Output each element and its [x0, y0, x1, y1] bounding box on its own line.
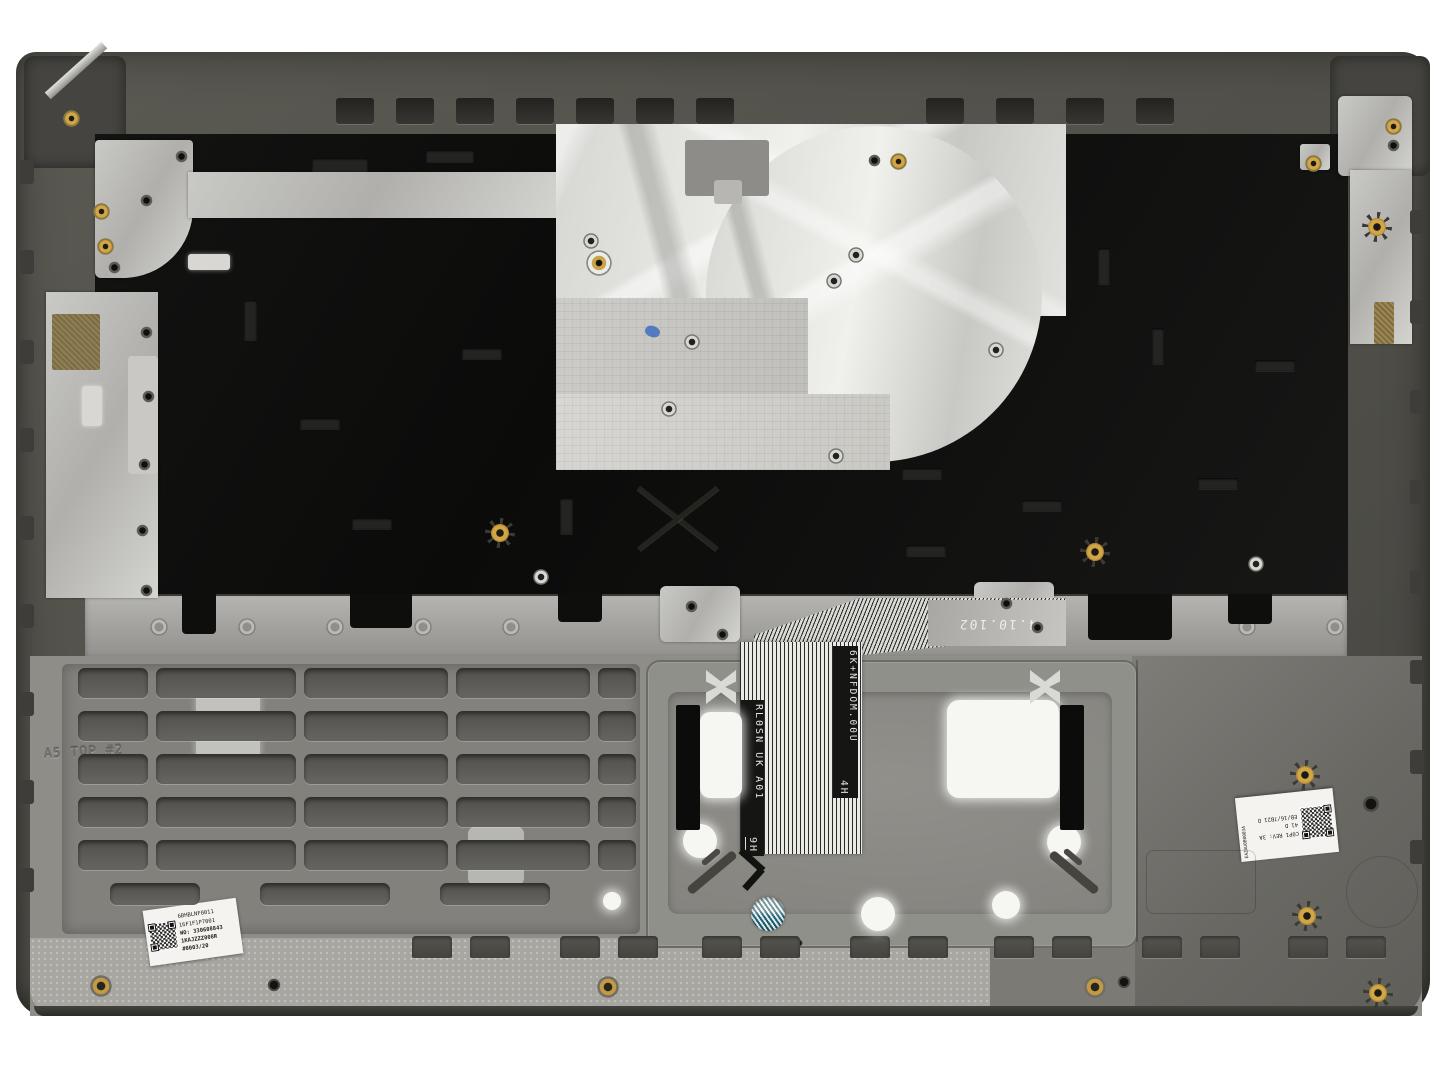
- vent-slat: [598, 711, 636, 741]
- vent-slat: [598, 668, 636, 698]
- qr-finder: [1323, 804, 1332, 813]
- edge-clip: [470, 936, 510, 958]
- ribbon-marking-right: 6K+NFDOM.00U 4H: [833, 646, 858, 798]
- qr-finder: [1326, 828, 1335, 837]
- gold-screw: [97, 238, 114, 255]
- edge-tab: [696, 98, 734, 124]
- panel-outline: [1146, 850, 1256, 914]
- cutout-slot: [462, 348, 502, 359]
- hinge-bracket-right: [1338, 96, 1412, 176]
- rim-nub: [1410, 390, 1424, 414]
- rivet-dent: [150, 618, 168, 636]
- screw-boss-star: [1360, 210, 1394, 244]
- rim-nub: [1410, 840, 1424, 864]
- rim-nub: [1410, 750, 1424, 774]
- vent-slat: [598, 754, 636, 784]
- edge-tab: [576, 98, 614, 124]
- copper-tape-right: [1374, 302, 1394, 344]
- rim-nub: [20, 250, 34, 274]
- screw-boss-star: [483, 516, 517, 550]
- qr-finder: [1302, 831, 1311, 840]
- screw-hole: [716, 628, 729, 641]
- cutout-slot: [1098, 248, 1110, 284]
- vent-slat: [456, 840, 590, 870]
- rivet-dent: [502, 618, 520, 636]
- screw-hole: [1000, 597, 1013, 610]
- vent-slat: [156, 797, 296, 827]
- rivet-dent: [238, 618, 256, 636]
- round-cutout: [603, 892, 621, 910]
- screw-hole: [140, 194, 153, 207]
- edge-clip: [1142, 936, 1182, 958]
- qr-finder: [150, 943, 159, 952]
- screw: [848, 247, 864, 263]
- edge-tab: [336, 98, 374, 124]
- ribbon-part-text: RL0SN UK A01: [753, 704, 764, 800]
- cutout-slot: [312, 158, 368, 171]
- round-hole: [1362, 795, 1380, 813]
- cutout-slot: [1022, 500, 1062, 511]
- rim-nub: [1410, 660, 1424, 684]
- edge-clip: [412, 936, 452, 958]
- adhesive-cutout: [947, 700, 1059, 798]
- backplate-tab: [1088, 594, 1172, 640]
- vent-slat: [78, 754, 148, 784]
- screw: [1248, 556, 1264, 572]
- rim-nub: [20, 428, 34, 452]
- ribbon-code: 4H: [838, 780, 849, 795]
- vent-slat: [78, 711, 148, 741]
- screw: [826, 273, 842, 289]
- screw-hole: [175, 150, 188, 163]
- cutout-slot: [1255, 360, 1295, 371]
- cutout-slot: [426, 150, 474, 162]
- rim-nub: [20, 780, 34, 804]
- copper-pad-left: [52, 314, 100, 370]
- qr-finder: [147, 923, 156, 932]
- screw-hole: [108, 261, 121, 274]
- rim-nub: [1410, 300, 1424, 324]
- edge-clip: [560, 936, 600, 958]
- qr-finder: [167, 920, 176, 929]
- round-cutout: [861, 897, 895, 931]
- rivet-dent: [326, 618, 344, 636]
- screw-hole: [142, 390, 155, 403]
- rim-nub: [20, 868, 34, 892]
- vent-slat: [304, 797, 448, 827]
- round-cutout: [992, 891, 1020, 919]
- screw-hole: [140, 326, 153, 339]
- rivet-dent: [1326, 618, 1344, 636]
- edge-clip: [1288, 936, 1328, 958]
- vent-slat: [456, 711, 590, 741]
- edge-tab: [926, 98, 964, 124]
- panel-groove: [1136, 660, 1138, 942]
- service-label-text: 6BHBLNF0011 16F1F1P7001 WO: 330608843 1K…: [177, 903, 227, 959]
- screw-insert-brass: [90, 975, 112, 997]
- screw: [533, 569, 549, 585]
- cutout-slot: [560, 498, 573, 534]
- screw-boss-star: [1288, 758, 1322, 792]
- screw-hole: [138, 458, 151, 471]
- gold-screw: [93, 203, 110, 220]
- date-stamp: 4.10.102: [957, 616, 1037, 631]
- light-slot: [188, 254, 230, 270]
- screw: [828, 448, 844, 464]
- edge-clip: [1200, 936, 1240, 958]
- edge-tab: [1066, 98, 1104, 124]
- date-stamp-area: 4.10.102: [928, 600, 1066, 646]
- backplate-tab: [1228, 594, 1272, 624]
- vent-slat: [598, 797, 636, 827]
- screw-boss-star: [1290, 899, 1324, 933]
- edge-clip: [618, 936, 658, 958]
- screw: [988, 342, 1004, 358]
- edge-clip: [850, 936, 890, 958]
- cutout-slot: [1198, 478, 1238, 489]
- foil-patch-tab: [714, 180, 742, 204]
- edge-tab: [1136, 98, 1174, 124]
- backplate-tab: [350, 594, 412, 628]
- edge-tab: [636, 98, 674, 124]
- vent-slat: [156, 668, 296, 698]
- screw: [583, 233, 599, 249]
- left-rail-extension: [128, 356, 158, 474]
- front-edge: [34, 1006, 1418, 1016]
- cutout-slot: [352, 518, 392, 529]
- faint-circle: [1346, 856, 1418, 928]
- backplate-tab: [182, 594, 216, 634]
- vent-slat: [304, 754, 448, 784]
- vent-slat: [598, 840, 636, 870]
- vent-slat: [78, 668, 148, 698]
- screw-hole: [1387, 139, 1400, 152]
- cutout-slot: [902, 468, 942, 479]
- backplate-tab: [558, 594, 602, 622]
- vent-slat: [304, 711, 448, 741]
- screw-hole: [136, 524, 149, 537]
- vent-slat: [456, 754, 590, 784]
- edge-clip: [760, 936, 800, 958]
- screw-hole: [685, 600, 698, 613]
- screw-hole: [140, 584, 153, 597]
- product-photo-laptop-palmrest: A5 TOP #2 4.10.102 RL0SN UK A01 9H 6K+NF…: [0, 0, 1445, 1084]
- gold-screw: [63, 110, 80, 127]
- screw-hole: [868, 154, 881, 167]
- rim-nub: [1410, 480, 1424, 504]
- qr-code: [1299, 804, 1334, 839]
- screw-insert-brass: [1084, 976, 1106, 998]
- gold-screw: [1305, 155, 1322, 172]
- edge-tab: [456, 98, 494, 124]
- edge-tab: [396, 98, 434, 124]
- adhesive-cutout: [700, 712, 742, 798]
- edge-clip: [702, 936, 742, 958]
- gold-screw: [890, 153, 907, 170]
- rivet-dent: [414, 618, 432, 636]
- vent-slat: [110, 883, 200, 905]
- vent-slat: [456, 797, 590, 827]
- rim-nub: [20, 692, 34, 716]
- vent-slat: [456, 668, 590, 698]
- edge-clip: [908, 936, 948, 958]
- round-hole: [267, 978, 281, 992]
- rim-nub: [1410, 570, 1424, 594]
- cutout-slot: [300, 418, 340, 429]
- adhesive-strip: [676, 705, 700, 830]
- edge-clip: [1346, 936, 1386, 958]
- rim-nub: [20, 340, 34, 364]
- cutout-slot: [244, 300, 257, 340]
- cutout-slot: [1152, 328, 1164, 364]
- vent-slat: [156, 754, 296, 784]
- hologram-sticker: [751, 897, 785, 931]
- screw: [684, 334, 700, 350]
- rim-nub: [20, 516, 34, 540]
- vent-slat: [156, 840, 296, 870]
- top-rail: [188, 172, 560, 218]
- rim-nub: [1410, 210, 1424, 234]
- screw-boss-star: [1361, 976, 1395, 1010]
- screw-insert-brass: [597, 976, 619, 998]
- cutout-slot: [906, 545, 946, 556]
- service-label-text: C0P1 REV: 3A 41 D EB/16/7B21 D: [1255, 795, 1301, 857]
- vent-slat: [304, 840, 448, 870]
- adhesive-strip: [1060, 705, 1084, 830]
- edge-clip: [1052, 936, 1092, 958]
- edge-tab: [996, 98, 1034, 124]
- light-slot: [82, 386, 102, 426]
- ribbon-part-text: 6K+NFDOM.00U: [847, 650, 858, 743]
- vent-slat: [156, 711, 296, 741]
- vent-slat: [260, 883, 390, 905]
- edge-tab: [516, 98, 554, 124]
- vent-slat: [78, 797, 148, 827]
- vent-slat: [440, 883, 550, 905]
- screw: [661, 401, 677, 417]
- ribbon-marking-left: RL0SN UK A01 9H: [741, 700, 764, 856]
- vent-slat: [78, 840, 148, 870]
- rim-nub: [20, 160, 34, 184]
- round-hole: [1117, 975, 1131, 989]
- rim-nub: [20, 604, 34, 628]
- gold-screw-large: [586, 250, 612, 276]
- screw-hole: [1031, 621, 1044, 634]
- gold-screw: [1385, 118, 1402, 135]
- vent-slat: [304, 668, 448, 698]
- screw-boss-star: [1078, 535, 1112, 569]
- qr-code: [147, 920, 179, 952]
- edge-clip: [994, 936, 1034, 958]
